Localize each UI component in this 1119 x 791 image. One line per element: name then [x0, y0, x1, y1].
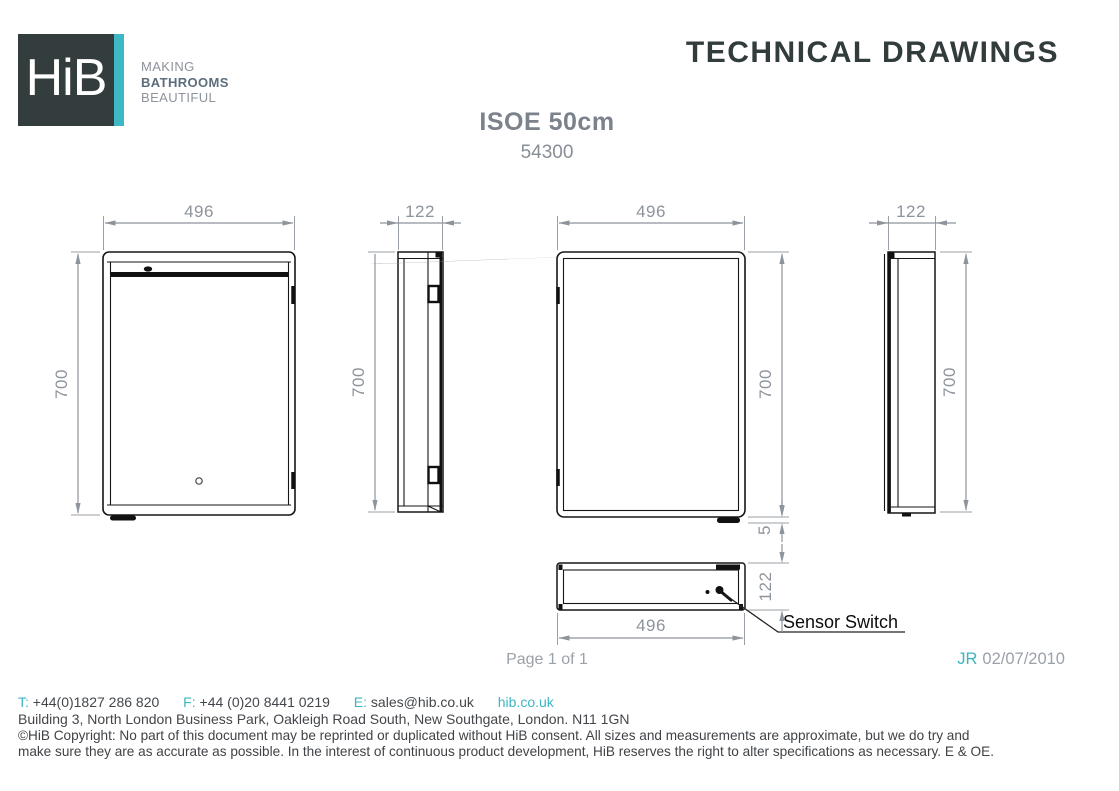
foot-side	[902, 513, 911, 517]
author-initials: JR	[957, 650, 977, 668]
hinge-block	[429, 467, 439, 483]
foot-right	[717, 518, 740, 524]
email-label: E:	[354, 694, 367, 710]
brand-tagline: MAKING BATHROOMS BEAUTIFUL	[141, 59, 229, 106]
side-view-right-width-dimension: 122	[869, 202, 956, 250]
tagline-line-1: MAKING	[141, 59, 229, 75]
demister-dot	[196, 478, 202, 484]
email-group: E: sales@hib.co.uk	[354, 694, 474, 710]
copyright-line-1: ©HiB Copyright: No part of this document…	[18, 728, 1106, 744]
hib-logo-text: HiB	[26, 52, 107, 108]
dim-side-right-height: 700	[940, 367, 959, 397]
sensor-dot	[144, 266, 152, 271]
front-view-drawing	[103, 252, 295, 521]
website-link[interactable]: hib.co.uk	[498, 694, 554, 710]
foot-height-dimension: 5	[748, 500, 789, 542]
dim-bottom-width: 496	[636, 616, 666, 635]
phone-label: T:	[18, 694, 29, 710]
side-view-right-drawing	[885, 252, 936, 517]
product-name: ISOE 50cm	[0, 108, 1094, 137]
revision-stamp: JR02/07/2010	[957, 650, 1065, 669]
address-line: Building 3, North London Business Park, …	[18, 711, 1106, 727]
rear-view-width-dimension: 496	[558, 202, 745, 250]
phone-group: T: +44(0)1827 286 820	[18, 694, 159, 710]
email-address[interactable]: sales@hib.co.uk	[371, 694, 474, 710]
dim-side-right-width: 122	[896, 202, 926, 221]
phone-number: +44(0)1827 286 820	[33, 694, 160, 710]
document-title: TECHNICAL DRAWINGS	[686, 36, 1059, 70]
technical-drawings-canvas: 496 700 122	[0, 180, 1119, 660]
dim-front-width: 496	[184, 202, 214, 221]
dim-side-left-width: 122	[405, 202, 435, 221]
front-view-height-dimension: 700	[52, 252, 100, 515]
rear-view-height-dimension: 700	[748, 252, 789, 517]
fax-number: +44 (0)20 8441 0219	[200, 694, 330, 710]
dim-foot-height: 5	[755, 525, 774, 535]
tagline-line-3: BEAUTIFUL	[141, 90, 229, 106]
contact-line: T: +44(0)1827 286 820 F: +44 (0)20 8441 …	[18, 694, 1106, 710]
light-strip	[111, 272, 288, 277]
dim-side-left-height: 700	[349, 367, 368, 397]
page-count: Page 1 of 1	[0, 651, 1094, 669]
dim-bottom-depth: 122	[756, 572, 775, 602]
bottom-view-depth-dimension: 122	[748, 544, 789, 632]
product-code: 54300	[0, 142, 1094, 164]
sensor-switch-label: Sensor Switch	[783, 612, 898, 632]
fax-label: F:	[183, 694, 195, 710]
side-view-right-height-dimension: 700	[940, 252, 972, 512]
bottom-view-drawing: Sensor Switch	[557, 563, 905, 632]
technical-drawing-page: HiB MAKING BATHROOMS BEAUTIFUL TECHNICAL…	[0, 0, 1119, 791]
tagline-line-2: BATHROOMS	[141, 75, 229, 91]
foot-left	[110, 516, 136, 521]
rear-view-drawing	[557, 252, 745, 523]
dim-front-height: 700	[52, 369, 71, 399]
footer: T: +44(0)1827 286 820 F: +44 (0)20 8441 …	[18, 694, 1106, 760]
dim-rear-height: 700	[756, 369, 775, 399]
side-view-left-drawing	[398, 252, 443, 512]
side-view-left-width-dimension: 122	[380, 202, 461, 250]
bottom-view-width-dimension: 496	[558, 613, 745, 645]
copyright-line-2: make sure they are as accurate as possib…	[18, 744, 1106, 760]
fax-group: F: +44 (0)20 8441 0219	[183, 694, 330, 710]
revision-date: 02/07/2010	[982, 650, 1065, 668]
hinge-block	[429, 286, 439, 302]
dim-rear-width: 496	[636, 202, 666, 221]
front-view-width-dimension: 496	[104, 202, 295, 250]
